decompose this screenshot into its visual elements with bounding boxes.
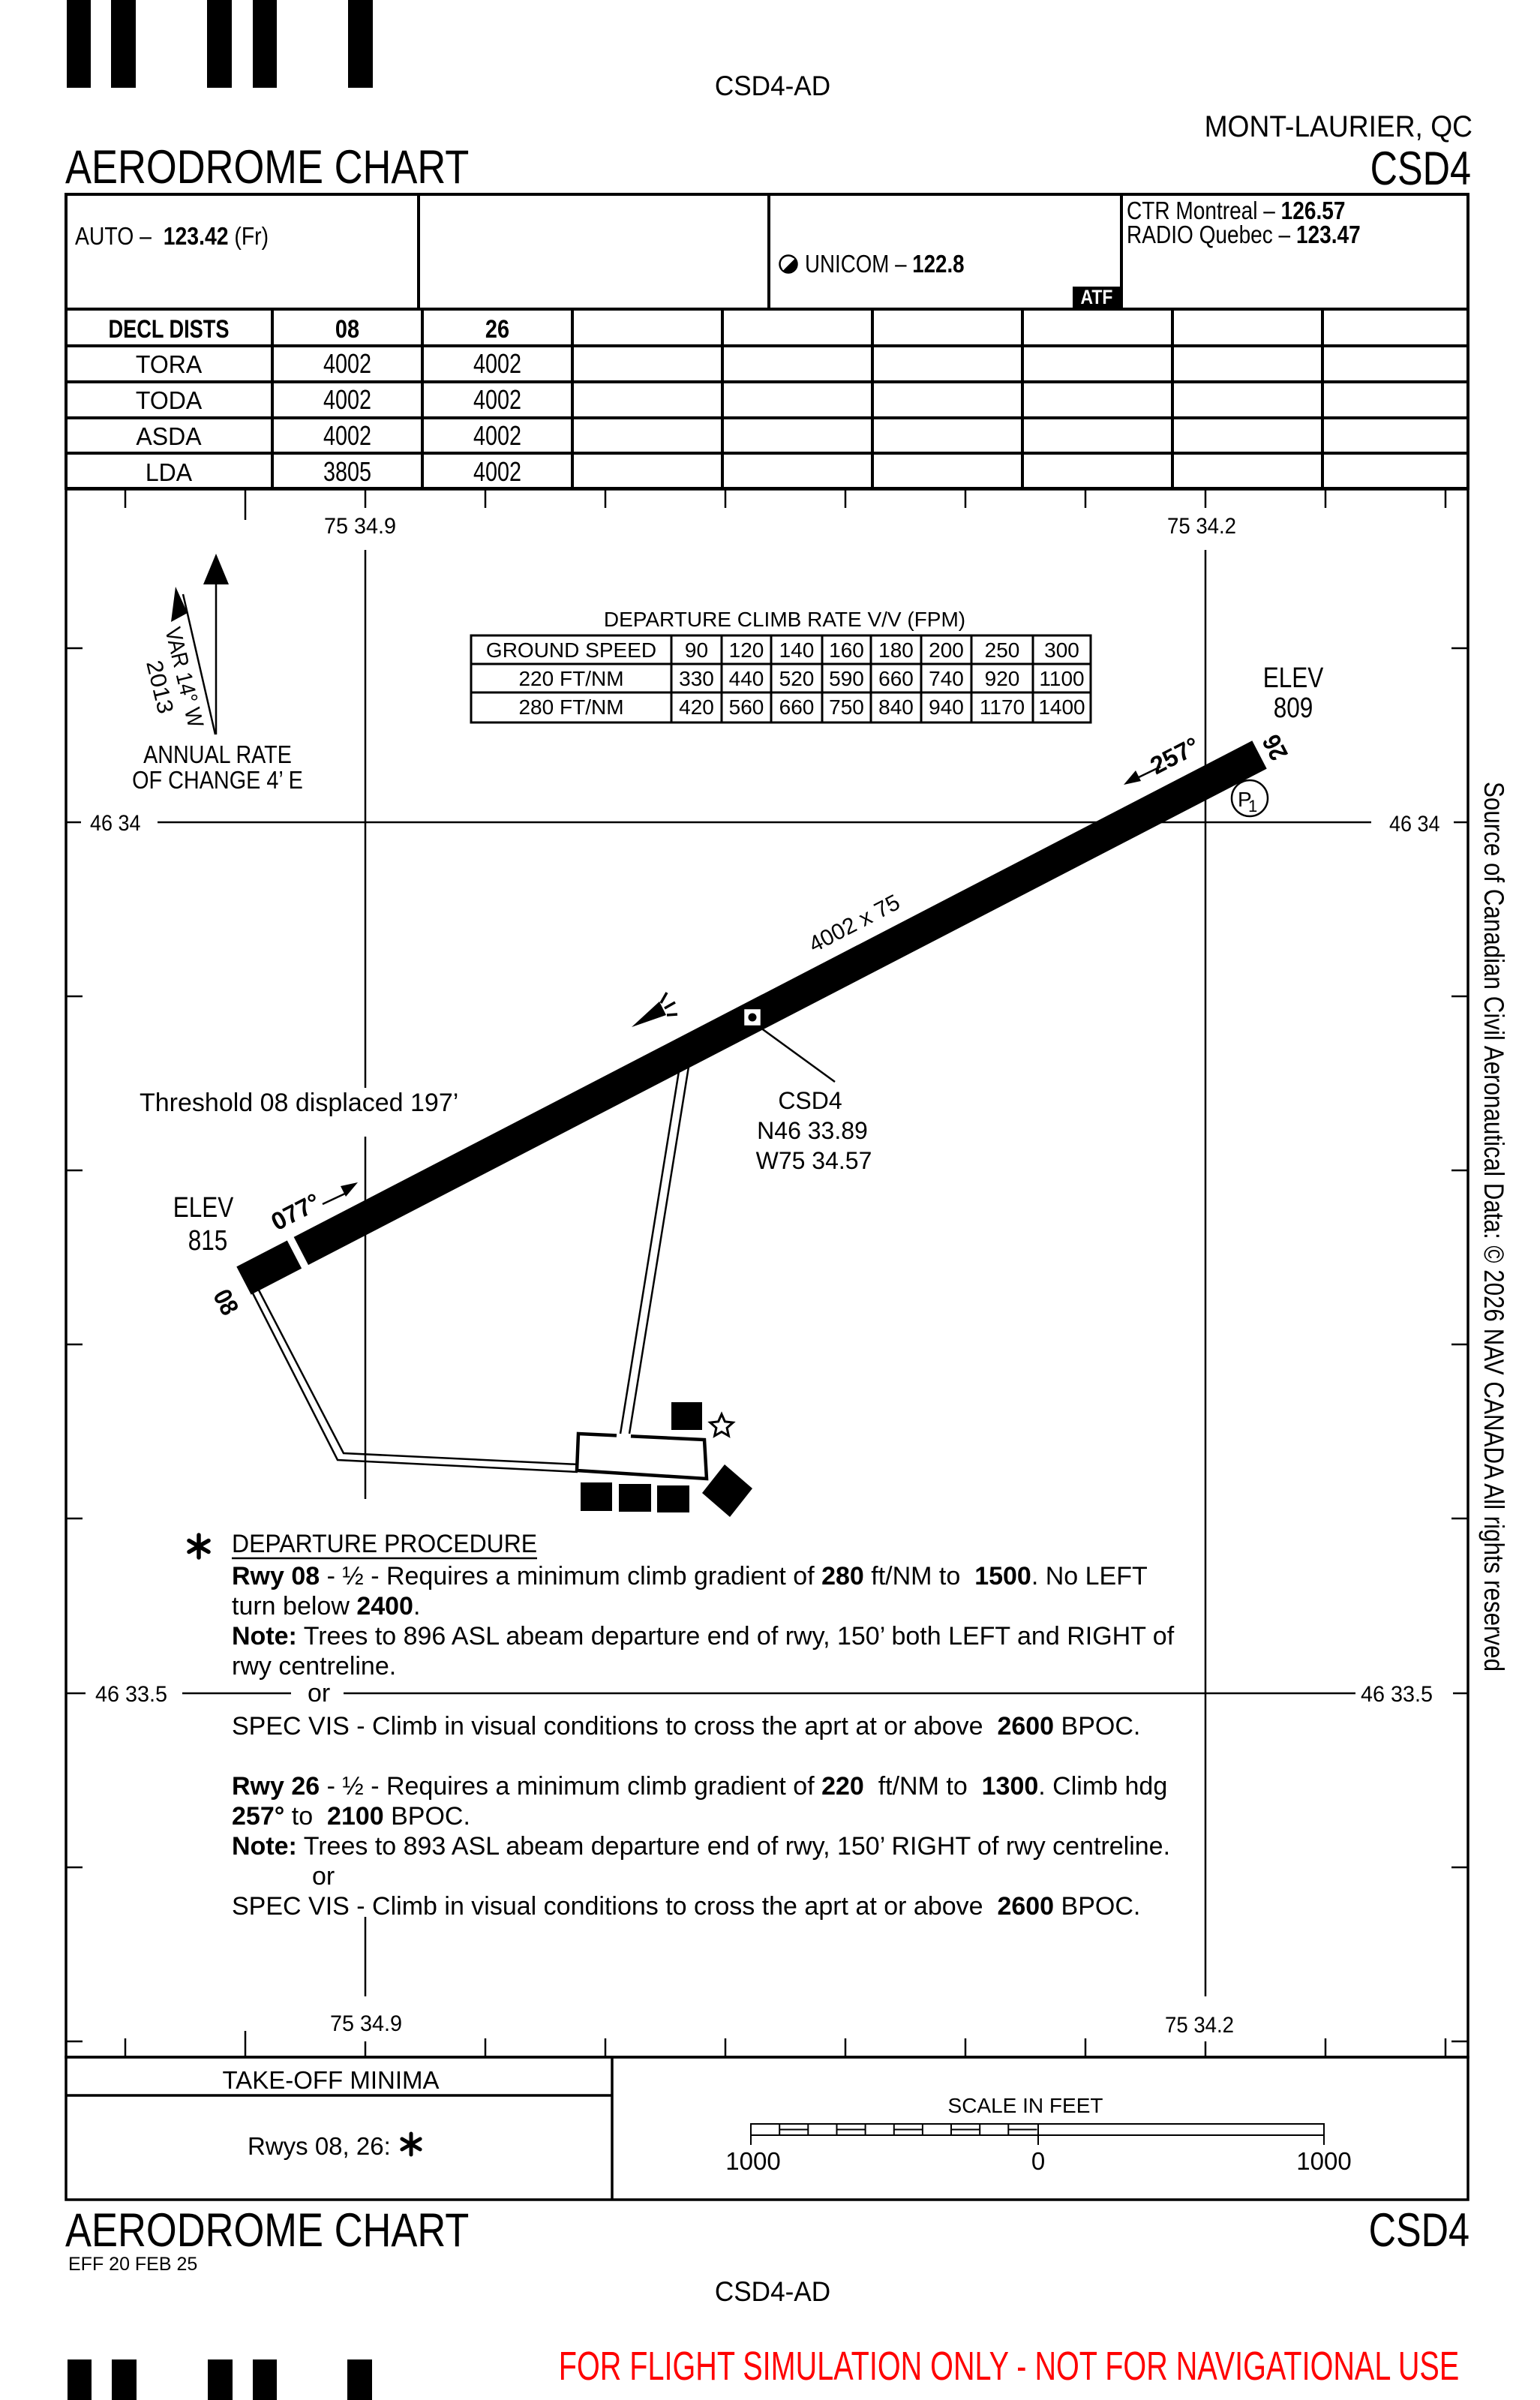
svg-text:1000: 1000 bbox=[725, 2147, 780, 2175]
svg-text:46 34: 46 34 bbox=[1389, 812, 1440, 837]
svg-text:CSD4: CSD4 bbox=[1369, 2204, 1469, 2257]
svg-text:FOR FLIGHT SIMULATION ONLY - N: FOR FLIGHT SIMULATION ONLY - NOT FOR NAV… bbox=[559, 2344, 1459, 2389]
svg-text:ASDA: ASDA bbox=[136, 423, 201, 451]
svg-text:140: 140 bbox=[779, 638, 815, 662]
svg-text:250: 250 bbox=[985, 638, 1020, 662]
svg-text:4002: 4002 bbox=[473, 456, 521, 487]
svg-text:420: 420 bbox=[679, 695, 714, 719]
svg-text:08: 08 bbox=[335, 314, 359, 344]
svg-text:MONT-LAURIER, QC: MONT-LAURIER, QC bbox=[1205, 110, 1472, 144]
svg-text:740: 740 bbox=[929, 667, 964, 690]
svg-text:OF CHANGE 4’ E: OF CHANGE 4’ E bbox=[132, 766, 303, 794]
svg-text:Rwy 08 - ½ - Requires a minimu: Rwy 08 - ½ - Requires a minimum climb gr… bbox=[232, 1562, 1148, 1590]
svg-text:590: 590 bbox=[829, 667, 864, 690]
svg-text:DEPARTURE CLIMB RATE V/V (FPM): DEPARTURE CLIMB RATE V/V (FPM) bbox=[604, 608, 965, 631]
svg-text:SPEC VIS - Climb in visual con: SPEC VIS - Climb in visual conditions to… bbox=[232, 1892, 1140, 1921]
svg-text:rwy centreline.: rwy centreline. bbox=[232, 1652, 396, 1681]
svg-text:AUTO – 123.42 (Fr): AUTO – 123.42 (Fr) bbox=[75, 222, 269, 251]
svg-text:AERODROME CHART: AERODROME CHART bbox=[65, 142, 469, 194]
svg-text:560: 560 bbox=[729, 695, 764, 719]
svg-text:DEPARTURE PROCEDURE: DEPARTURE PROCEDURE bbox=[232, 1529, 537, 1557]
svg-text:TODA: TODA bbox=[136, 387, 203, 415]
svg-text:Threshold 08 displaced 197’: Threshold 08 displaced 197’ bbox=[140, 1089, 458, 1117]
svg-text:ELEV: ELEV bbox=[1263, 662, 1324, 693]
svg-text:LDA: LDA bbox=[146, 459, 193, 487]
svg-text:CSD4: CSD4 bbox=[778, 1087, 842, 1114]
svg-text:Rwys 08, 26:: Rwys 08, 26: bbox=[248, 2132, 391, 2160]
svg-text:AERODROME CHART: AERODROME CHART bbox=[65, 2205, 469, 2257]
svg-text:1000: 1000 bbox=[1296, 2147, 1351, 2175]
svg-text:46 33.5: 46 33.5 bbox=[1361, 1681, 1433, 1707]
svg-text:330: 330 bbox=[679, 667, 714, 690]
svg-text:4002: 4002 bbox=[323, 348, 371, 379]
svg-text:840: 840 bbox=[878, 695, 914, 719]
svg-text:220 FT/NM: 220 FT/NM bbox=[518, 667, 623, 690]
svg-text:440: 440 bbox=[729, 667, 764, 690]
svg-text:520: 520 bbox=[779, 667, 815, 690]
svg-text:CSD4-AD: CSD4-AD bbox=[715, 70, 830, 101]
svg-text:4002: 4002 bbox=[473, 420, 521, 451]
svg-text:4002: 4002 bbox=[473, 348, 521, 379]
svg-text:750: 750 bbox=[829, 695, 864, 719]
svg-text:1400: 1400 bbox=[1038, 695, 1085, 719]
svg-text:ELEV: ELEV bbox=[173, 1191, 234, 1223]
svg-text:257° to 2100 BPOC.: 257° to 2100 BPOC. bbox=[232, 1802, 470, 1831]
svg-text:or: or bbox=[308, 1679, 330, 1708]
svg-text:660: 660 bbox=[779, 695, 815, 719]
svg-text:300: 300 bbox=[1044, 638, 1079, 662]
svg-text:RADIO Quebec – 123.47: RADIO Quebec – 123.47 bbox=[1127, 221, 1361, 249]
svg-text:920: 920 bbox=[985, 667, 1020, 690]
svg-text:Rwy 26 - ½ - Requires a minimu: Rwy 26 - ½ - Requires a minimum climb gr… bbox=[232, 1772, 1167, 1801]
svg-text:660: 660 bbox=[878, 667, 914, 690]
svg-text:1100: 1100 bbox=[1039, 667, 1084, 690]
svg-text:75 34.2: 75 34.2 bbox=[1165, 2013, 1234, 2038]
svg-text:Note: Trees to 896 ASL abeam d: Note: Trees to 896 ASL abeam departure e… bbox=[232, 1622, 1175, 1651]
svg-text:46 33.5: 46 33.5 bbox=[95, 1681, 167, 1707]
svg-text:TAKE-OFF MINIMA: TAKE-OFF MINIMA bbox=[222, 2066, 439, 2094]
svg-text:809: 809 bbox=[1274, 692, 1313, 723]
svg-text:ANNUAL RATE: ANNUAL RATE bbox=[143, 740, 292, 768]
svg-text:GROUND SPEED: GROUND SPEED bbox=[486, 638, 656, 662]
svg-text:turn below 2400.: turn below 2400. bbox=[232, 1592, 420, 1621]
svg-text:940: 940 bbox=[929, 695, 964, 719]
svg-text:75 34.2: 75 34.2 bbox=[1167, 514, 1236, 539]
svg-text:or: or bbox=[312, 1862, 335, 1891]
svg-text:SCALE IN FEET: SCALE IN FEET bbox=[948, 2094, 1103, 2117]
svg-text:SPEC VIS - Climb in visual con: SPEC VIS - Climb in visual conditions to… bbox=[232, 1712, 1140, 1741]
svg-text:4002: 4002 bbox=[473, 384, 521, 415]
svg-text:1170: 1170 bbox=[980, 695, 1025, 719]
svg-text:75 34.9: 75 34.9 bbox=[330, 2011, 402, 2036]
svg-text:Note: Trees to 893 ASL abeam d: Note: Trees to 893 ASL abeam departure e… bbox=[232, 1832, 1170, 1861]
svg-text:200: 200 bbox=[929, 638, 964, 662]
svg-text:UNICOM – 122.8: UNICOM – 122.8 bbox=[805, 251, 965, 278]
svg-text:180: 180 bbox=[878, 638, 914, 662]
svg-text:Source of Canadian Civil Aeron: Source of Canadian Civil Aeronautical Da… bbox=[1478, 782, 1509, 1672]
svg-text:280 FT/NM: 280 FT/NM bbox=[518, 695, 623, 719]
svg-text:DECL DISTS: DECL DISTS bbox=[108, 314, 229, 344]
svg-text:N46 33.89: N46 33.89 bbox=[757, 1117, 868, 1144]
svg-text:4002: 4002 bbox=[323, 420, 371, 451]
svg-text:ATF: ATF bbox=[1081, 286, 1113, 308]
svg-text:CSD4-AD: CSD4-AD bbox=[715, 2275, 830, 2307]
svg-text:90: 90 bbox=[685, 638, 708, 662]
svg-text:26: 26 bbox=[485, 314, 509, 344]
svg-text:EFF 20 FEB 25: EFF 20 FEB 25 bbox=[68, 2254, 197, 2275]
svg-text:3805: 3805 bbox=[323, 456, 371, 487]
svg-text:TORA: TORA bbox=[136, 351, 203, 379]
svg-text:0: 0 bbox=[1031, 2147, 1045, 2175]
svg-text:75 34.9: 75 34.9 bbox=[324, 513, 396, 539]
svg-text:1: 1 bbox=[1248, 797, 1257, 816]
svg-text:815: 815 bbox=[188, 1224, 228, 1256]
svg-text:160: 160 bbox=[829, 638, 864, 662]
svg-text:120: 120 bbox=[729, 638, 764, 662]
svg-text:CSD4: CSD4 bbox=[1370, 143, 1471, 196]
svg-text:46 34: 46 34 bbox=[90, 811, 141, 837]
svg-text:4002: 4002 bbox=[323, 384, 371, 415]
svg-text:W75 34.57: W75 34.57 bbox=[756, 1147, 872, 1174]
